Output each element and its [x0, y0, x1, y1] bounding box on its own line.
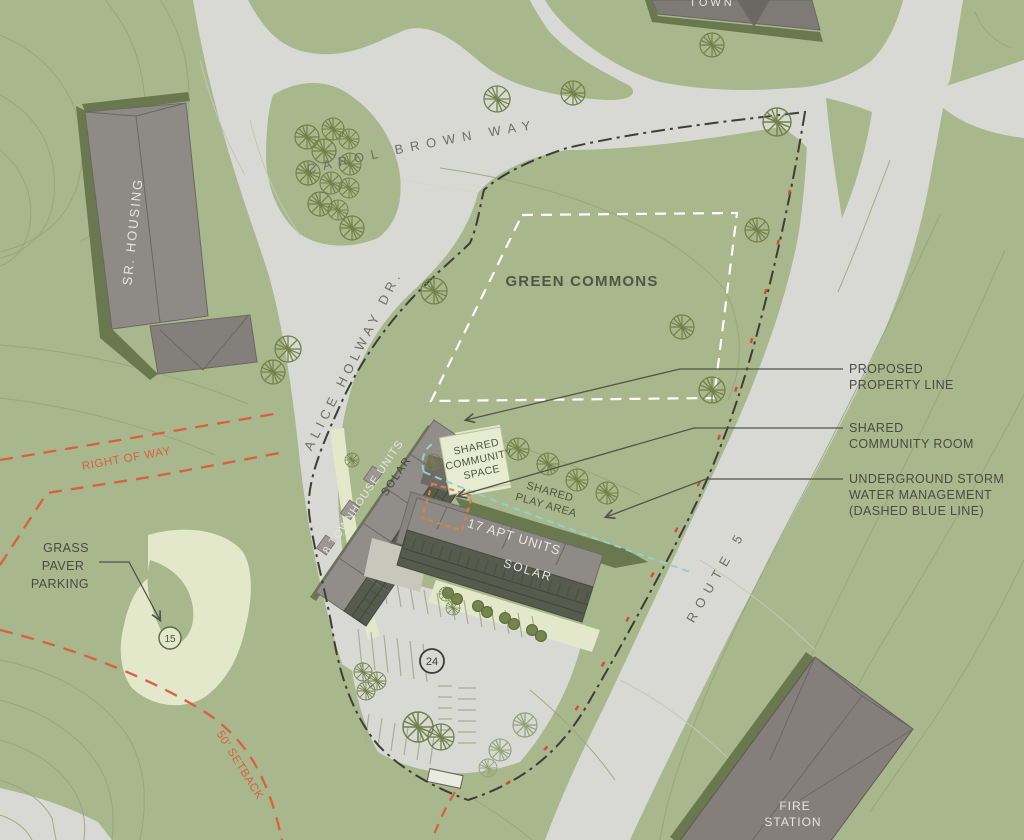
svg-text:24: 24 [426, 656, 438, 668]
fire-station-label-2: STATION [764, 815, 821, 829]
grass-paver-count-badge: 15 [159, 627, 181, 649]
svg-text:PAVER: PAVER [42, 559, 85, 573]
svg-text:GRASS: GRASS [43, 541, 89, 555]
svg-text:PARKING: PARKING [31, 577, 89, 591]
parking-count-badge: 24 [420, 649, 444, 673]
green-commons-label: GREEN COMMONS [505, 273, 658, 290]
svg-text:PROPERTY LINE: PROPERTY LINE [849, 378, 954, 392]
site-plan-map: SR. HOUSING TOWN FIRE STATION 8 TOWNHOUS… [0, 0, 1024, 840]
svg-text:SHARED: SHARED [849, 421, 904, 435]
svg-text:15: 15 [164, 634, 176, 645]
svg-text:PROPOSED: PROPOSED [849, 362, 923, 376]
svg-text:UNDERGROUND STORM: UNDERGROUND STORM [849, 472, 1004, 486]
fire-station-label-1: FIRE [779, 799, 810, 813]
svg-text:WATER MANAGEMENT: WATER MANAGEMENT [849, 488, 992, 502]
top-partial-label: TOWN [689, 0, 734, 9]
svg-text:COMMUNITY ROOM: COMMUNITY ROOM [849, 437, 974, 451]
svg-text:(DASHED BLUE LINE): (DASHED BLUE LINE) [849, 504, 984, 518]
annotation-underground-storm: UNDERGROUND STORM WATER MANAGEMENT (DASH… [849, 472, 1004, 518]
site-plan-canvas: SR. HOUSING TOWN FIRE STATION 8 TOWNHOUS… [0, 0, 1024, 840]
